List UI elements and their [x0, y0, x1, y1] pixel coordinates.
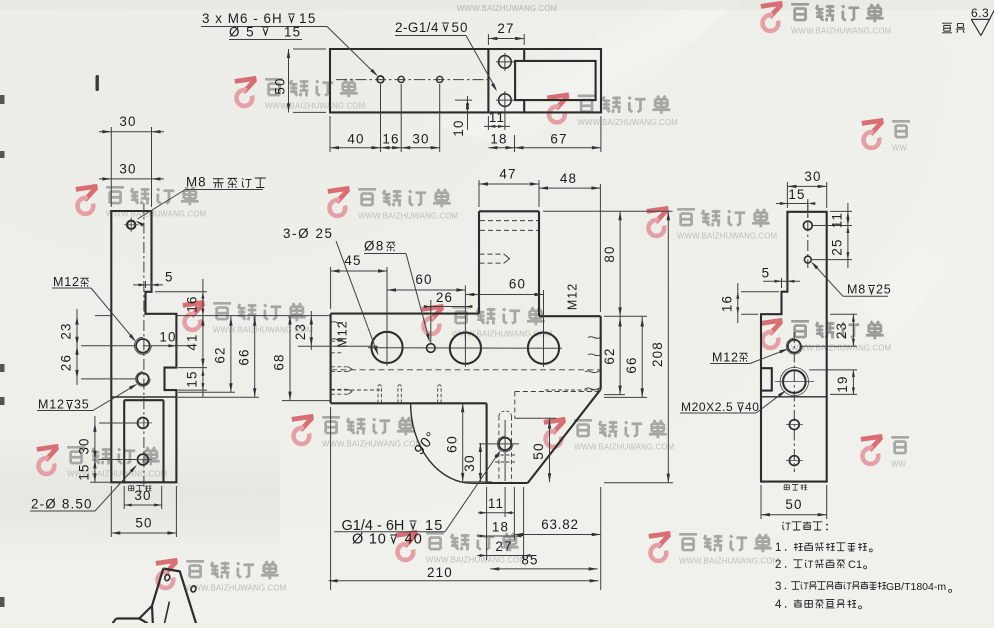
svg-text:23: 23 [59, 322, 74, 339]
svg-text:30: 30 [804, 169, 821, 184]
svg-text:68: 68 [272, 353, 287, 370]
svg-text:50: 50 [135, 516, 152, 531]
svg-text:M8: M8 [186, 175, 207, 190]
svg-text:3-Ø 25: 3-Ø 25 [283, 226, 334, 241]
svg-text:210: 210 [427, 565, 453, 580]
svg-text:50: 50 [785, 497, 802, 512]
svg-text:2-G1/4: 2-G1/4 [395, 20, 439, 35]
svg-text:GB/T1804-m: GB/T1804-m [886, 581, 946, 593]
svg-text:WW: WW [892, 144, 908, 153]
svg-text:4: 4 [775, 599, 782, 611]
svg-text:11: 11 [830, 212, 845, 228]
svg-text:40: 40 [405, 532, 424, 548]
svg-text:15: 15 [185, 370, 200, 387]
svg-text:Ø 5: Ø 5 [229, 25, 255, 40]
svg-text:WWW.BAIZHUWANG.COM: WWW.BAIZHUWANG.COM [791, 344, 891, 353]
svg-text:2-Ø 8.50: 2-Ø 8.50 [31, 497, 93, 512]
svg-text:15: 15 [77, 463, 92, 480]
svg-text:62: 62 [213, 346, 228, 363]
svg-text:18: 18 [490, 132, 507, 147]
svg-text:25: 25 [830, 238, 845, 255]
svg-text:50: 50 [531, 442, 546, 460]
svg-text:WWW.BAIZHUWANG.COM: WWW.BAIZHUWANG.COM [791, 27, 891, 36]
svg-text:25: 25 [876, 283, 892, 297]
svg-text:60: 60 [444, 435, 460, 453]
svg-text:3: 3 [775, 581, 781, 593]
svg-text:41: 41 [185, 333, 200, 350]
svg-text:26: 26 [436, 290, 453, 305]
svg-text:15: 15 [299, 11, 317, 26]
svg-text:WWW.BAIZHUWANG.COM: WWW.BAIZHUWANG.COM [578, 118, 678, 127]
svg-text:63.82: 63.82 [541, 517, 579, 532]
svg-text:1: 1 [775, 542, 781, 554]
svg-text:WWW.BAIZHUWANG.COM: WWW.BAIZHUWANG.COM [679, 557, 779, 566]
svg-text:45: 45 [344, 253, 361, 268]
svg-text:Ø 10: Ø 10 [352, 532, 387, 548]
svg-text:WWW.BAIZHUWANG.COM: WWW.BAIZHUWANG.COM [574, 443, 674, 452]
svg-text:60: 60 [415, 272, 432, 287]
svg-text:48: 48 [560, 171, 577, 186]
svg-text:60: 60 [509, 277, 526, 292]
svg-text:50: 50 [452, 20, 469, 35]
svg-text:66: 66 [237, 348, 252, 365]
svg-text:23: 23 [293, 323, 308, 340]
svg-text:23: 23 [834, 322, 849, 339]
svg-text:11: 11 [488, 496, 504, 511]
svg-text:40: 40 [347, 132, 364, 147]
svg-text:M12: M12 [53, 275, 80, 289]
svg-text:15: 15 [788, 187, 805, 202]
svg-text:66: 66 [624, 356, 639, 373]
svg-text:30: 30 [119, 162, 136, 177]
svg-text:16: 16 [720, 295, 735, 312]
svg-text:85: 85 [521, 553, 538, 568]
svg-text:WWW.BAIZHUWANG.COM: WWW.BAIZHUWANG.COM [358, 212, 458, 221]
svg-text:47: 47 [499, 167, 516, 182]
svg-text:2: 2 [775, 559, 781, 571]
svg-text:10: 10 [451, 119, 466, 136]
svg-text:WWW.BAIZHUWANG.COM: WWW.BAIZHUWANG.COM [457, 4, 557, 13]
svg-text:WWW.BAIZHUWANG.COM: WWW.BAIZHUWANG.COM [265, 102, 365, 111]
svg-text:WWW.BAIZHUWANG.COM: WWW.BAIZHUWANG.COM [426, 556, 526, 565]
svg-text:67: 67 [550, 132, 567, 147]
svg-text:6.3: 6.3 [971, 6, 989, 20]
svg-text:27: 27 [497, 21, 514, 36]
svg-text:WWW.BAIZHUWANG.COM: WWW.BAIZHUWANG.COM [186, 584, 286, 593]
svg-text:WWW.BAIZHUWANG.COM: WWW.BAIZHUWANG.COM [677, 232, 777, 241]
svg-text:30: 30 [77, 437, 92, 454]
svg-text:30: 30 [412, 132, 429, 147]
svg-text:Ø8: Ø8 [364, 239, 385, 254]
svg-text:30: 30 [462, 454, 477, 472]
svg-text:50: 50 [273, 77, 288, 94]
svg-text:10: 10 [159, 330, 176, 345]
svg-text:15: 15 [284, 25, 301, 40]
svg-text:16: 16 [382, 132, 399, 147]
svg-text:16: 16 [185, 295, 200, 312]
svg-text:27: 27 [495, 539, 512, 554]
svg-text:18: 18 [492, 520, 509, 535]
svg-text:M12: M12 [565, 283, 579, 310]
svg-text:WW: WW [891, 460, 907, 469]
svg-text:M12: M12 [336, 320, 350, 347]
svg-text:M12: M12 [712, 351, 739, 365]
svg-text:26: 26 [59, 354, 74, 371]
svg-text:80: 80 [602, 245, 617, 262]
svg-text:WWW.BAIZHUWANG.COM: WWW.BAIZHUWANG.COM [322, 440, 422, 449]
svg-text:208: 208 [650, 341, 665, 367]
svg-text:62: 62 [602, 347, 617, 364]
svg-text:C1: C1 [848, 559, 862, 571]
svg-text:M8: M8 [847, 283, 866, 297]
svg-text:30: 30 [119, 114, 136, 129]
svg-text:19: 19 [835, 375, 850, 392]
svg-text:M20X2.5: M20X2.5 [681, 400, 733, 414]
svg-text:11: 11 [489, 110, 505, 125]
svg-text:35: 35 [74, 398, 90, 412]
svg-text:M12: M12 [38, 398, 65, 412]
svg-text:5: 5 [165, 270, 174, 285]
svg-text:30: 30 [134, 488, 151, 503]
svg-text:5: 5 [762, 266, 771, 281]
